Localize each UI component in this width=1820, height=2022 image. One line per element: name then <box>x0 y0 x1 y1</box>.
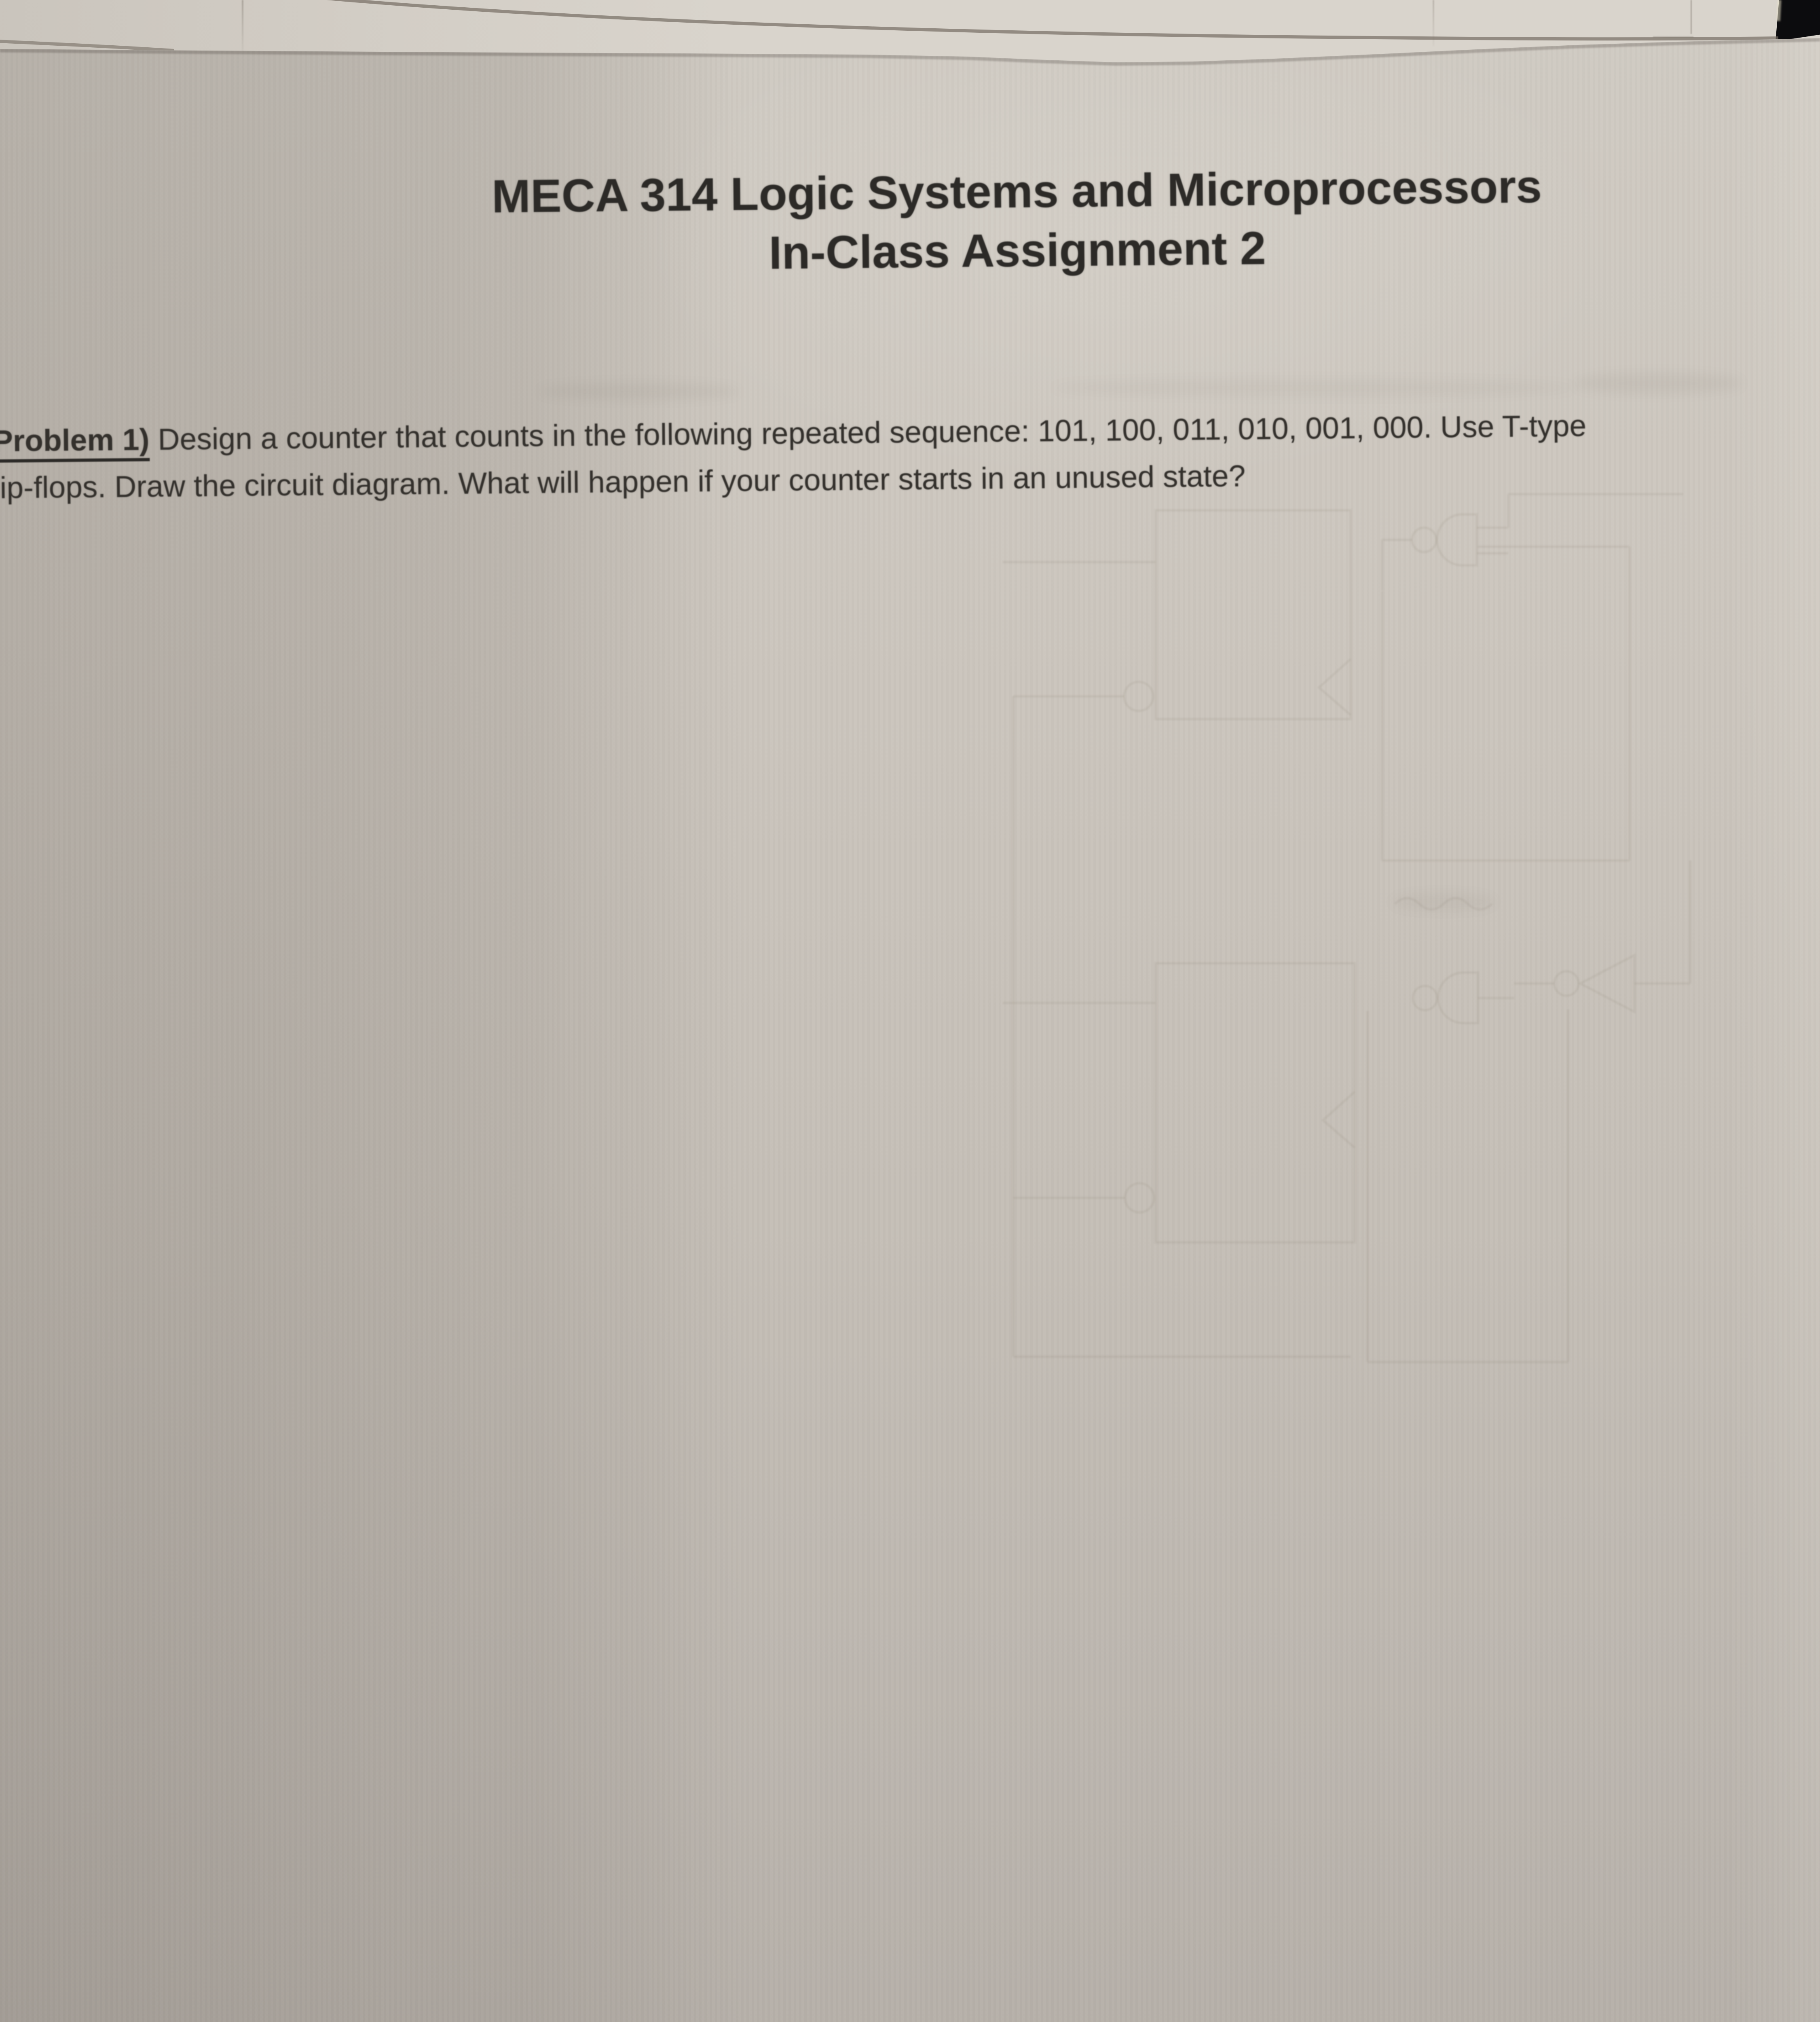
curved-line <box>317 0 1778 39</box>
document-header: MECA 314 Logic Systems and Microprocesso… <box>216 154 1818 288</box>
document-photo: MECA 314 Logic Systems and Microprocesso… <box>0 0 1820 2022</box>
printed-content: MECA 314 Logic Systems and Microprocesso… <box>0 0 1820 2022</box>
assignment-sheet: MECA 314 Logic Systems and Microprocesso… <box>0 0 1820 2022</box>
problem-statement: Problem 1) Design a counter that counts … <box>0 400 1820 511</box>
problem-label: Problem 1) <box>0 422 150 463</box>
problem-text-1: Design a counter that counts in the foll… <box>149 408 1586 456</box>
